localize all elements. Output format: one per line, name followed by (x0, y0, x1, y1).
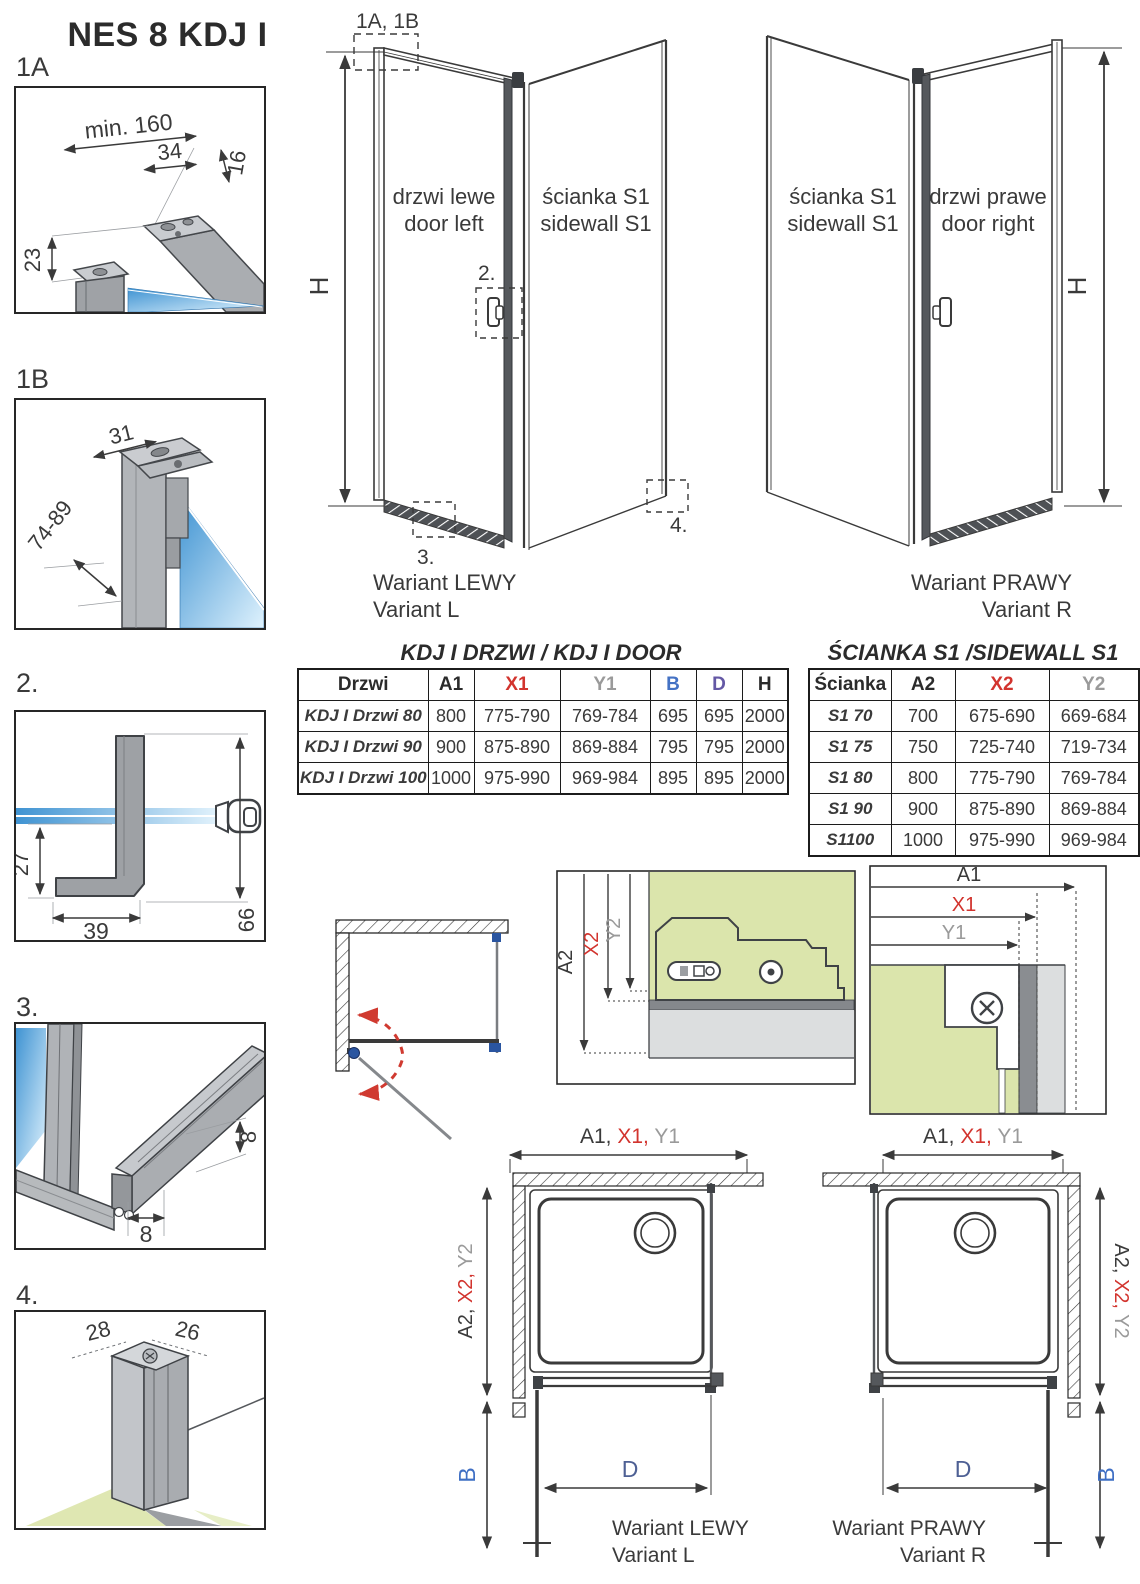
detail-1b-label: 1B (16, 364, 49, 395)
bottom-callout-4: 4. (647, 480, 688, 537)
row-header: S1 90 (809, 794, 891, 825)
svg-text:X2: X2 (581, 932, 603, 956)
wall-top (513, 1173, 763, 1186)
cell: 900 (428, 732, 474, 763)
door-open (359, 1058, 451, 1139)
detail-2-box: 27 39 66 (14, 710, 266, 942)
cell: 669-684 (1049, 701, 1139, 732)
cell: 800 (891, 763, 955, 794)
svg-text:74-89: 74-89 (23, 496, 77, 556)
door-closed (871, 1373, 1057, 1389)
svg-text:27: 27 (16, 852, 33, 876)
col-header: D (696, 669, 742, 701)
col-header: Ścianka (809, 669, 891, 701)
caption-variant-right-pl: Wariant PRAWY (911, 570, 1072, 595)
svg-text:34: 34 (156, 138, 183, 165)
sidewall-table: ŚciankaA2X2Y2S1 70700675-690669-684S1 75… (808, 668, 1140, 857)
cell: 795 (650, 732, 696, 763)
table-row: S1 75750725-740719-734 (809, 732, 1139, 763)
enclosure-structure (767, 36, 1062, 546)
door-open (1034, 1390, 1062, 1557)
cell: 700 (891, 701, 955, 732)
svg-text:A2, X2, Y2: A2, X2, Y2 (455, 1243, 477, 1338)
plan-right-variant: A1, X1, Y1 A2, (783, 1115, 1140, 1582)
svg-text:D: D (955, 1456, 972, 1482)
cell: 975-990 (474, 763, 560, 795)
shower-tray (530, 1190, 712, 1372)
cell: 869-884 (1049, 794, 1139, 825)
wall-left-stub (513, 1403, 525, 1417)
svg-text:8: 8 (236, 1131, 261, 1143)
svg-text:B: B (454, 1467, 480, 1482)
row-header: S1 75 (809, 732, 891, 763)
svg-text:39: 39 (83, 918, 109, 940)
dim-74-89: 74-89 (23, 496, 122, 606)
table-row: KDJ I Drzwi 1001000975-990969-9848958952… (298, 763, 788, 795)
row-header: S1100 (809, 825, 891, 857)
detail-3-drawing: 8 8 (16, 1024, 264, 1248)
col-header: A1 (428, 669, 474, 701)
caption-variant-right-en: Variant R (982, 597, 1072, 622)
caption-en: Variant R (900, 1544, 986, 1567)
cell: 725-740 (955, 732, 1049, 763)
header-row: ŚciankaA2X2Y2 (809, 669, 1139, 701)
wall-top (823, 1173, 1080, 1186)
cell: 875-890 (955, 794, 1049, 825)
svg-text:4.: 4. (670, 514, 688, 537)
wall-profile-drawing (120, 438, 264, 628)
iso-right-variant: H ścianka S1 sidewall S1 drzwi prawe doo… (718, 8, 1140, 640)
svg-text:H: H (304, 277, 334, 296)
ref-1a-1b: 1A, 1B (356, 10, 419, 33)
caption-variant-left-pl: Wariant LEWY (373, 570, 517, 595)
svg-text:3.: 3. (417, 546, 435, 569)
svg-text:A2, X2, Y2: A2, X2, Y2 (1110, 1243, 1132, 1338)
door-label-en: door right (942, 211, 1035, 236)
svg-text:23: 23 (20, 248, 45, 272)
cell: 775-790 (474, 701, 560, 732)
cell: 875-890 (474, 732, 560, 763)
page-title: NES 8 KDJ I (60, 16, 275, 55)
cell: 719-734 (1049, 732, 1139, 763)
swing-arc (359, 1015, 403, 1094)
cell: 750 (891, 732, 955, 763)
cell: 675-690 (955, 701, 1049, 732)
cell: 975-990 (955, 825, 1049, 857)
shower-tray (878, 1190, 1058, 1372)
handle-callout: 2. (476, 262, 522, 338)
col-header: H (742, 669, 788, 701)
caption-pl: Wariant PRAWY (832, 1517, 986, 1540)
svg-text:min. 160: min. 160 (83, 109, 173, 144)
table-row: S1 70700675-690669-684 (809, 701, 1139, 732)
wall-right (1068, 1186, 1080, 1398)
caption-variant-left-en: Variant L (373, 597, 459, 622)
svg-text:Y2: Y2 (603, 918, 625, 942)
row-header: KDJ I Drzwi 80 (298, 701, 428, 732)
svg-text:A1, X1, Y1: A1, X1, Y1 (923, 1125, 1023, 1148)
door-label-pl: drzwi lewe (393, 184, 496, 209)
dim-side-a2x2y2: A2, X2, Y2 (1100, 1188, 1132, 1395)
detail-1a-label: 1A (16, 52, 49, 83)
svg-text:H: H (1062, 277, 1092, 296)
dim-b: B (1093, 1402, 1119, 1548)
cell: 900 (891, 794, 955, 825)
sidewall-table-title: ŚCIANKA S1 /SIDEWALL S1 (806, 640, 1140, 666)
header-row: DrzwiA1X1Y1BDH (298, 669, 788, 701)
wall-label-pl: ścianka S1 (789, 184, 897, 209)
svg-text:2.: 2. (478, 262, 496, 285)
detail-1a-box: min. 160 34 16 23 (14, 86, 266, 314)
dim-top-a1x1y1: A1, X1, Y1 (883, 1125, 1063, 1173)
svg-text:A1, X1, Y1: A1, X1, Y1 (580, 1125, 680, 1148)
table-row: S1 80800775-790769-784 (809, 763, 1139, 794)
corner-drawing (871, 965, 1065, 1113)
dim-d: D (883, 1398, 1046, 1495)
detail-4-label: 4. (16, 1280, 39, 1311)
dim-top-a1x1y1: A1, X1, Y1 (510, 1125, 747, 1173)
cell: 1000 (891, 825, 955, 857)
cell: 969-984 (560, 763, 650, 795)
detail-1b-box: 31 74-89 (14, 398, 266, 630)
cell: 2000 (742, 763, 788, 795)
door-corner-detail: A1 X1 Y1 (869, 865, 1107, 1115)
dim-39: 39 (53, 900, 140, 940)
cell: 895 (650, 763, 696, 795)
svg-text:16: 16 (222, 148, 251, 176)
wall-label-pl: ścianka S1 (542, 184, 650, 209)
detail-2-label: 2. (16, 668, 39, 699)
threshold-profile-drawing (16, 1024, 264, 1230)
plan-left-variant: A1, X1, Y1 A2, (445, 1115, 780, 1582)
detail-1b-drawing: 31 74-89 (16, 400, 264, 628)
section-drawing (649, 872, 854, 1058)
cell: 769-784 (1049, 763, 1139, 794)
cell: 795 (696, 732, 742, 763)
detail-2-drawing: 27 39 66 (16, 712, 264, 940)
detail-4-drawing: 28 26 (16, 1312, 264, 1528)
caption-en: Variant L (612, 1544, 695, 1567)
detail-3-box: 8 8 (14, 1022, 266, 1250)
col-header: Y2 (1049, 669, 1139, 701)
row-header: KDJ I Drzwi 90 (298, 732, 428, 763)
col-header: Drzwi (298, 669, 428, 701)
col-header: A2 (891, 669, 955, 701)
caption-pl: Wariant LEWY (612, 1517, 749, 1540)
svg-text:B: B (1093, 1467, 1119, 1482)
door-closed (533, 1373, 723, 1389)
cell: 1000 (428, 763, 474, 795)
wall-label-en: sidewall S1 (787, 211, 898, 236)
detail-4-box: 28 26 (14, 1310, 266, 1530)
table-row: S11001000975-990969-984 (809, 825, 1139, 857)
table-row: KDJ I Drzwi 80800775-790769-784695695200… (298, 701, 788, 732)
cell: 2000 (742, 732, 788, 763)
dim-16: 16 (221, 148, 251, 182)
svg-text:D: D (622, 1456, 639, 1482)
door-swing-sketch (303, 893, 537, 1151)
svg-text:31: 31 (106, 419, 136, 449)
row-header: KDJ I Drzwi 100 (298, 763, 428, 795)
datasheet-page: NES 8 KDJ I 1A (0, 0, 1140, 1584)
wall-right-stub (1068, 1403, 1080, 1417)
svg-text:A2: A2 (556, 950, 577, 974)
col-header: Y1 (560, 669, 650, 701)
detail-1a-drawing: min. 160 34 16 23 (16, 88, 264, 312)
wall-left (513, 1186, 525, 1398)
dim-28: 28 (72, 1316, 126, 1358)
col-header: X2 (955, 669, 1049, 701)
svg-text:X1: X1 (952, 894, 976, 916)
dim-b: B (454, 1402, 487, 1548)
sidewall-profile (489, 933, 501, 1053)
wall-label-en: sidewall S1 (540, 211, 651, 236)
svg-text:8: 8 (140, 1221, 153, 1247)
door-open (523, 1390, 551, 1557)
svg-text:66: 66 (234, 908, 259, 932)
cell: 695 (696, 701, 742, 732)
svg-text:26: 26 (173, 1316, 202, 1346)
cell: 695 (650, 701, 696, 732)
detail-3-label: 3. (16, 992, 39, 1023)
cell: 2000 (742, 701, 788, 732)
svg-text:A1: A1 (957, 865, 981, 886)
wall-top (336, 920, 508, 933)
row-header: S1 80 (809, 763, 891, 794)
row-header: S1 70 (809, 701, 891, 732)
door-table-title: KDJ I DRZWI / KDJ I DOOR (295, 640, 787, 666)
dim-d: D (545, 1395, 711, 1495)
cell: 895 (696, 763, 742, 795)
dim-side-a2x2y2: A2, X2, Y2 (455, 1188, 487, 1395)
cell: 775-790 (955, 763, 1049, 794)
door-table: DrzwiA1X1Y1BDHKDJ I Drzwi 80800775-79076… (297, 668, 789, 795)
door-bracket-drawing (16, 736, 260, 896)
door-label-en: door left (404, 211, 484, 236)
h-dimension: H (1062, 48, 1122, 506)
svg-text:Y1: Y1 (942, 922, 966, 944)
iso-left-variant: H 1A, 1B drzwi lewe door left ścianka S1… (300, 8, 720, 640)
corner-post-drawing (26, 1342, 264, 1526)
cell: 769-784 (560, 701, 650, 732)
cell: 800 (428, 701, 474, 732)
cell: 869-884 (560, 732, 650, 763)
table-row: S1 90900875-890869-884 (809, 794, 1139, 825)
enclosure-structure (374, 40, 666, 550)
svg-text:28: 28 (83, 1316, 113, 1346)
cell: 969-984 (1049, 825, 1139, 857)
col-header: B (650, 669, 696, 701)
col-header: X1 (474, 669, 560, 701)
sidewall-section-detail: A2 X2 Y2 (556, 870, 856, 1085)
door-label-pl: drzwi prawe (929, 184, 1046, 209)
table-row: KDJ I Drzwi 90900875-890869-884795795200… (298, 732, 788, 763)
